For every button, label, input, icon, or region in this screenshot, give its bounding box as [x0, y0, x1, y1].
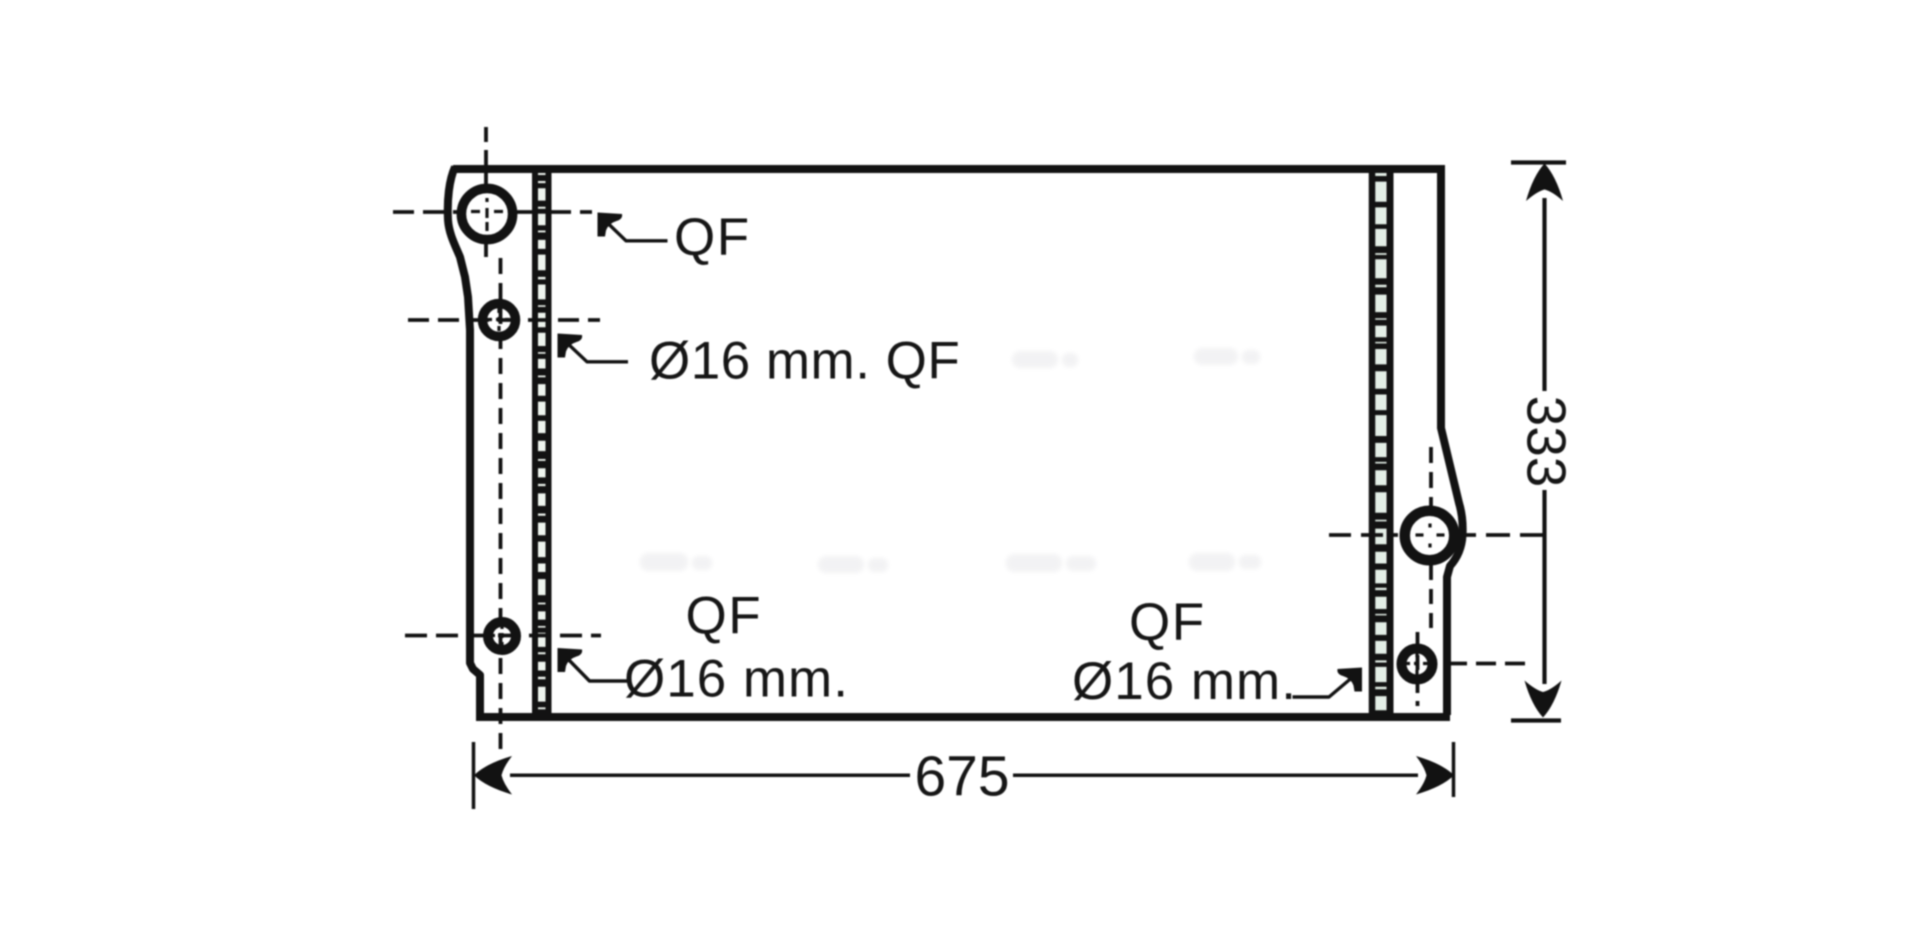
svg-text:QF: QF — [674, 208, 751, 267]
svg-text:675: 675 — [914, 745, 1009, 809]
svg-text:QF: QF — [686, 587, 763, 646]
svg-text:Ø16 mm.: Ø16 mm. — [624, 650, 849, 709]
svg-text:Ø16 mm. QF: Ø16 mm. QF — [649, 332, 960, 391]
svg-text:QF: QF — [1129, 593, 1206, 652]
svg-text:333: 333 — [1516, 396, 1578, 488]
svg-text:Ø16 mm.: Ø16 mm. — [1072, 652, 1297, 711]
